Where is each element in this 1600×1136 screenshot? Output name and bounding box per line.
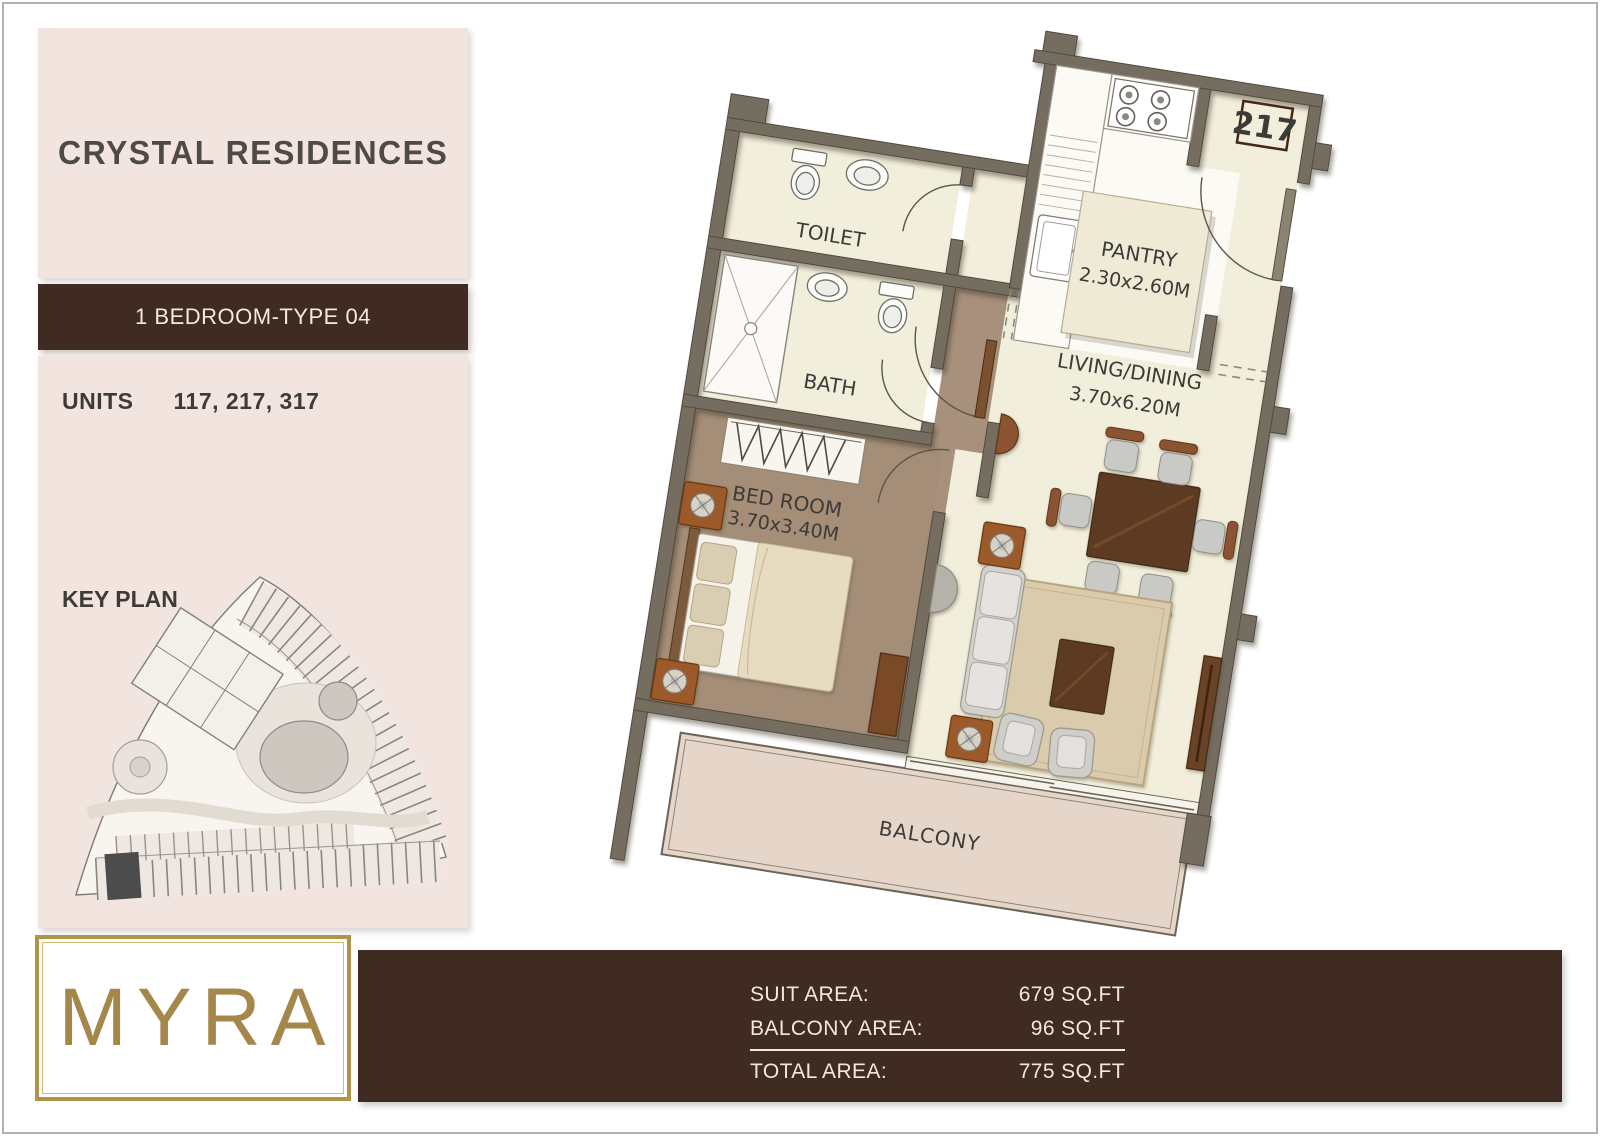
coffee-table-icon (1049, 639, 1114, 715)
project-title: CRYSTAL RESIDENCES (58, 134, 448, 172)
floor-plan: 217 TOILET BATH BED ROOM 3.70x3.40M PANT… (500, 0, 1350, 945)
myra-logo-box: MYRA (35, 935, 351, 1101)
unit-number-badge: 217 (1230, 100, 1300, 152)
area-row-total: TOTAL AREA: 775 SQ.FT (750, 1055, 1125, 1089)
total-area-label: TOTAL AREA: (750, 1060, 887, 1084)
units-value: 117, 217, 317 (174, 388, 320, 414)
armchair-icon (1047, 727, 1095, 779)
units-row: UNITS117, 217, 317 (62, 388, 319, 415)
key-plan-drawing (54, 561, 456, 919)
pillar-right-1 (1312, 143, 1332, 171)
balcony-area-value: 96 SQ.FT (1031, 1017, 1125, 1041)
suit-area-label: SUIT AREA: (750, 983, 869, 1007)
wall-seg (960, 167, 975, 187)
title-panel: CRYSTAL RESIDENCES (38, 28, 468, 278)
area-table: SUIT AREA: 679 SQ.FT BALCONY AREA: 96 SQ… (750, 978, 1125, 1089)
balcony-area-label: BALCONY AREA: (750, 1017, 923, 1041)
unit-band-bottom (96, 861, 440, 879)
area-row-suit: SUIT AREA: 679 SQ.FT (750, 978, 1125, 1012)
area-summary-bar: SUIT AREA: 679 SQ.FT BALCONY AREA: 96 SQ… (358, 950, 1562, 1102)
nightstand-icon (651, 658, 700, 705)
units-label: UNITS (62, 388, 134, 414)
key-plan-panel: UNITS117, 217, 317 KEY PLAN (38, 356, 468, 928)
pool (260, 721, 348, 793)
unit-type-bar: 1 BEDROOM-TYPE 04 (38, 284, 468, 350)
dining-table-icon (1086, 472, 1200, 572)
nightstand-icon (678, 481, 727, 530)
pillar-pantry-top (1043, 31, 1078, 56)
area-row-balcony: BALCONY AREA: 96 SQ.FT (750, 1012, 1125, 1051)
lamp-table-icon (978, 522, 1026, 570)
pillar-right-3 (1237, 614, 1257, 642)
suit-area-value: 679 SQ.FT (1019, 983, 1125, 1007)
lamp-table-icon (945, 715, 993, 763)
myra-logo-text: MYRA (51, 977, 336, 1059)
pillar-right-2 (1270, 406, 1290, 434)
plaza-center (130, 757, 150, 777)
highlighted-unit (104, 852, 141, 900)
unit-type-label: 1 BEDROOM-TYPE 04 (135, 304, 371, 330)
total-area-value: 775 SQ.FT (1019, 1060, 1125, 1084)
small-pool (319, 682, 357, 720)
